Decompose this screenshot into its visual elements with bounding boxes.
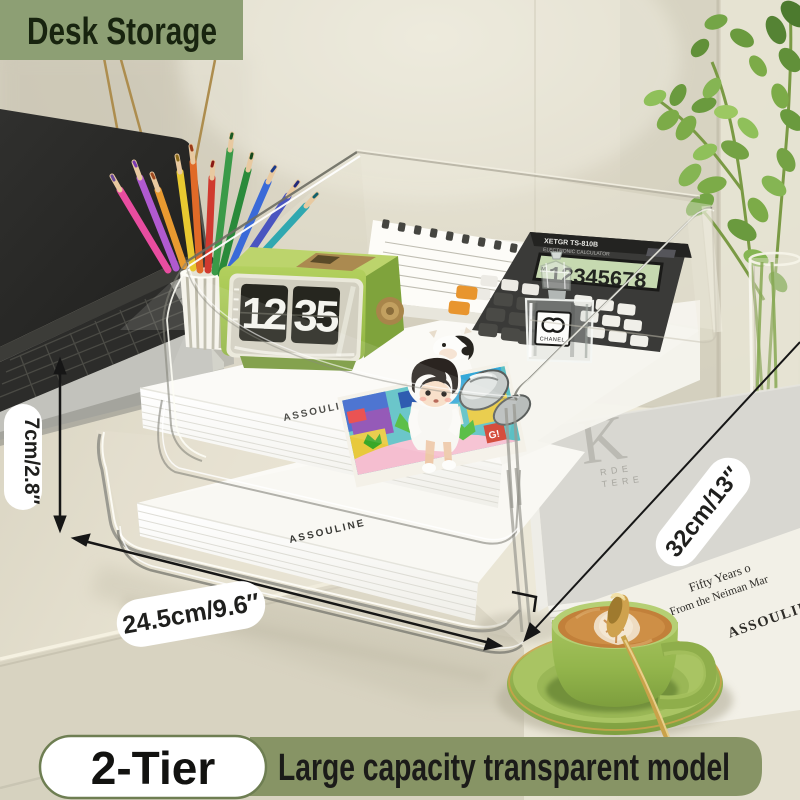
svg-text:Large capacity transparent mod: Large capacity transparent model bbox=[278, 747, 730, 789]
svg-text:2-Tier: 2-Tier bbox=[91, 742, 216, 794]
svg-text:Desk Storage: Desk Storage bbox=[27, 11, 217, 53]
svg-text:7cm/2.8″: 7cm/2.8″ bbox=[20, 417, 43, 504]
